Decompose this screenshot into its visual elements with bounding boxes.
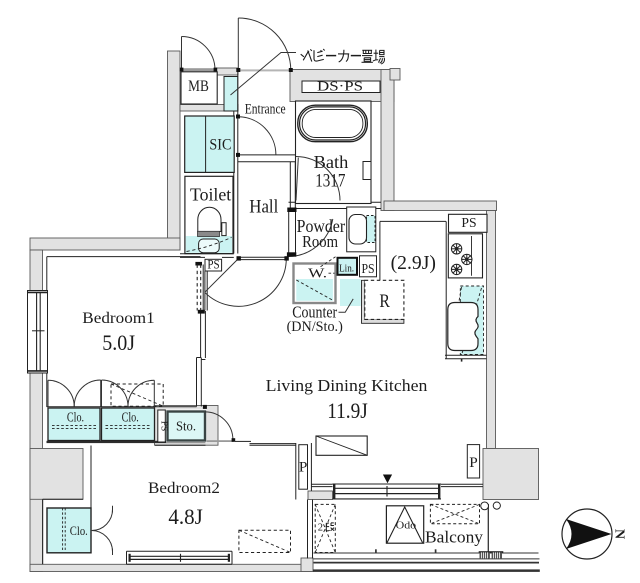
- svg-text:Bedroom1: Bedroom1: [82, 310, 154, 327]
- svg-text:PS: PS: [361, 261, 374, 276]
- svg-text:5.0J: 5.0J: [102, 330, 135, 355]
- svg-text:Odo: Odo: [396, 521, 417, 532]
- svg-text:W.: W.: [308, 267, 327, 282]
- svg-text:1317: 1317: [315, 170, 345, 191]
- svg-text:SIC: SIC: [209, 137, 231, 154]
- svg-text:Clo.: Clo.: [122, 410, 139, 425]
- svg-text:PS: PS: [159, 421, 169, 432]
- svg-text:Room: Room: [302, 232, 338, 251]
- svg-text:Lin.: Lin.: [339, 263, 354, 275]
- svg-text:2: 2: [318, 522, 323, 533]
- svg-text:Balcony: Balcony: [425, 528, 484, 547]
- svg-text:4.8J: 4.8J: [168, 504, 203, 529]
- svg-text:11.9J: 11.9J: [327, 398, 368, 423]
- svg-text:Clo.: Clo.: [67, 410, 84, 425]
- svg-text:Bedroom2: Bedroom2: [148, 480, 220, 497]
- svg-text:PS: PS: [207, 258, 219, 272]
- svg-text:Clo.: Clo.: [70, 523, 88, 538]
- svg-text:R: R: [379, 291, 390, 312]
- svg-text:PS: PS: [461, 216, 476, 231]
- svg-text:N: N: [612, 529, 627, 539]
- svg-text:(2.9J): (2.9J): [391, 252, 436, 274]
- svg-text:MB: MB: [188, 78, 209, 95]
- svg-text:P: P: [469, 455, 478, 471]
- svg-text:Sto.: Sto.: [176, 419, 196, 434]
- svg-text:P: P: [299, 460, 308, 476]
- svg-text:Entrance: Entrance: [245, 101, 286, 117]
- svg-text:Toilet: Toilet: [190, 184, 231, 204]
- svg-text:DS·PS: DS·PS: [317, 79, 363, 94]
- svg-text:Hall: Hall: [249, 197, 278, 217]
- svg-text:Bath: Bath: [314, 152, 349, 172]
- svg-text:(DN/Sto.): (DN/Sto.): [287, 319, 343, 335]
- svg-text:Living Dining Kitchen: Living Dining Kitchen: [266, 376, 428, 395]
